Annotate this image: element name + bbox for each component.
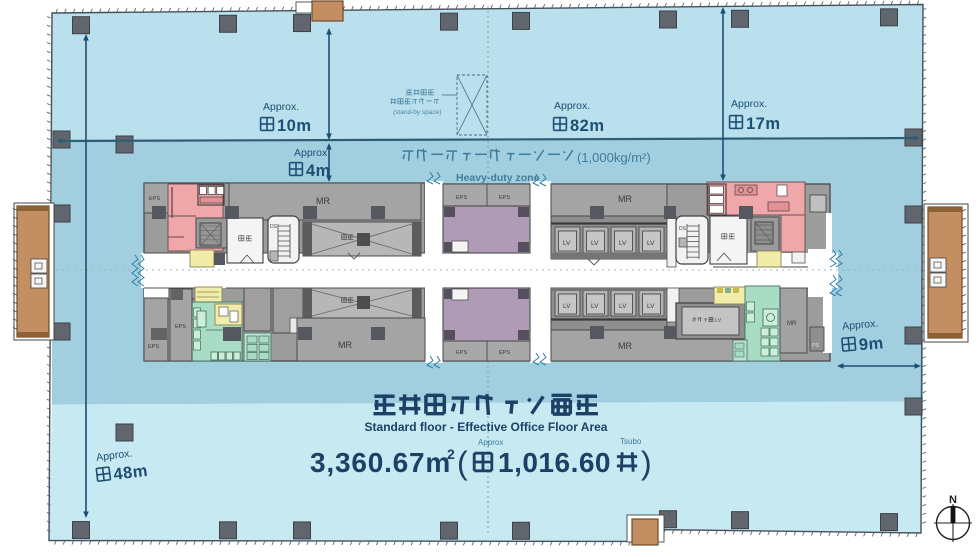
svg-text:LV: LV: [647, 240, 655, 247]
svg-text:EPS: EPS: [175, 324, 186, 330]
svg-text:LV: LV: [563, 303, 571, 310]
svg-text:17m: 17m: [746, 115, 781, 133]
svg-text:(stand-by space): (stand-by space): [393, 109, 441, 116]
svg-text:EPS: EPS: [499, 350, 510, 356]
svg-text:EPS: EPS: [456, 195, 467, 201]
svg-text:Tsubo: Tsubo: [620, 437, 642, 446]
svg-text:EPS: EPS: [456, 350, 467, 356]
svg-text:LV: LV: [647, 303, 655, 310]
svg-text:EPS: EPS: [499, 195, 510, 201]
svg-text:EPS: EPS: [149, 196, 160, 202]
svg-text:Standard floor - Effective Off: Standard floor - Effective Office Floor …: [365, 420, 608, 434]
svg-text:LV: LV: [591, 240, 599, 247]
svg-text:82m: 82m: [570, 117, 605, 135]
svg-text:Heavy-duty zone: Heavy-duty zone: [456, 172, 540, 184]
svg-text:LV: LV: [619, 240, 627, 247]
svg-text:Approx.: Approx.: [731, 98, 767, 110]
svg-text:(: (: [457, 445, 468, 481]
svg-text:MR: MR: [338, 340, 352, 350]
svg-text:N: N: [949, 494, 957, 506]
svg-text:MR: MR: [316, 196, 330, 206]
svg-text:3,360.67m: 3,360.67m: [310, 447, 451, 478]
svg-text:LV: LV: [563, 240, 571, 247]
svg-text:Approx.: Approx.: [554, 100, 590, 112]
svg-text:(1,000kg/m²): (1,000kg/m²): [577, 150, 651, 165]
svg-text:LV: LV: [591, 303, 599, 310]
svg-text:MR: MR: [787, 321, 797, 327]
svg-text:4m: 4m: [306, 162, 331, 180]
svg-text:DS: DS: [679, 226, 687, 232]
svg-text:Approx: Approx: [478, 438, 503, 447]
svg-text:10m: 10m: [277, 117, 312, 135]
svg-text:9m: 9m: [858, 334, 884, 354]
svg-text:Approx.: Approx.: [294, 147, 330, 159]
svg-text:LV: LV: [715, 318, 722, 324]
svg-text:PS: PS: [812, 343, 820, 349]
svg-text:DS: DS: [270, 224, 278, 230]
svg-text:1,016.60: 1,016.60: [498, 447, 611, 478]
svg-text:2: 2: [447, 446, 455, 462]
svg-text:LV: LV: [619, 303, 627, 310]
svg-text:): ): [641, 445, 652, 481]
svg-text:MR: MR: [618, 341, 632, 351]
svg-text:Approx.: Approx.: [263, 101, 299, 113]
svg-text:MR: MR: [618, 194, 632, 204]
svg-text:EPS: EPS: [148, 344, 159, 350]
